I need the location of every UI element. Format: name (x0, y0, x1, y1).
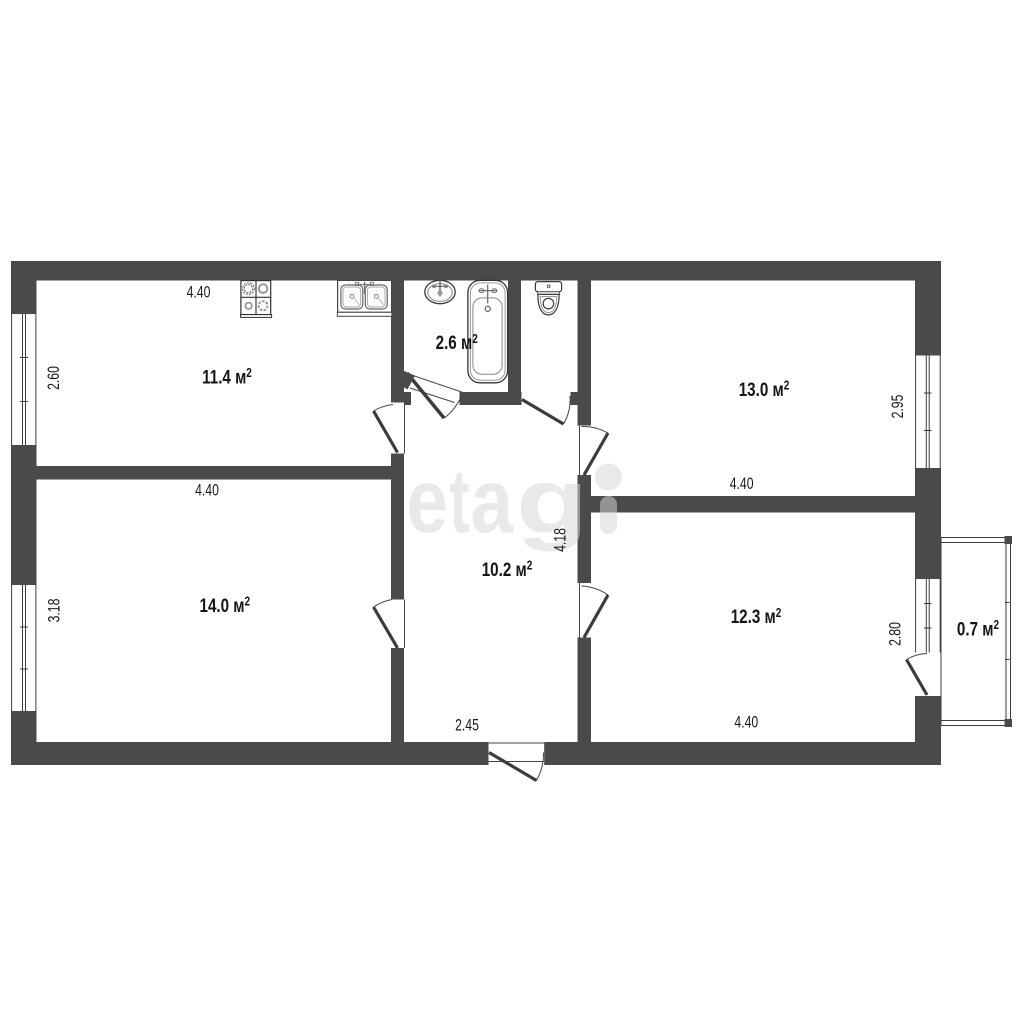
svg-text:13.0 м2: 13.0 м2 (739, 378, 790, 400)
svg-text:2.95: 2.95 (889, 395, 907, 419)
svg-text:4.40: 4.40 (195, 482, 219, 500)
svg-text:2.80: 2.80 (887, 622, 905, 646)
svg-text:2.45: 2.45 (455, 717, 479, 735)
svg-text:0.7 м2: 0.7 м2 (957, 618, 999, 640)
svg-text:t: t (449, 451, 469, 552)
svg-text:3.18: 3.18 (46, 599, 64, 623)
svg-text:4.18: 4.18 (552, 528, 570, 552)
svg-text:11.4 м2: 11.4 м2 (202, 366, 252, 388)
svg-text:14.0 м2: 14.0 м2 (200, 594, 251, 616)
svg-text:2.6 м2: 2.6 м2 (436, 331, 478, 353)
svg-text:4.40: 4.40 (187, 284, 211, 302)
svg-text:12.3 м2: 12.3 м2 (731, 606, 782, 628)
svg-text:a: a (471, 450, 515, 552)
svg-text:e: e (407, 450, 449, 552)
svg-text:4.40: 4.40 (734, 714, 758, 732)
svg-text:4.40: 4.40 (730, 475, 754, 493)
svg-text:2.60: 2.60 (45, 366, 63, 390)
svg-text:10.2 м2: 10.2 м2 (482, 558, 533, 580)
